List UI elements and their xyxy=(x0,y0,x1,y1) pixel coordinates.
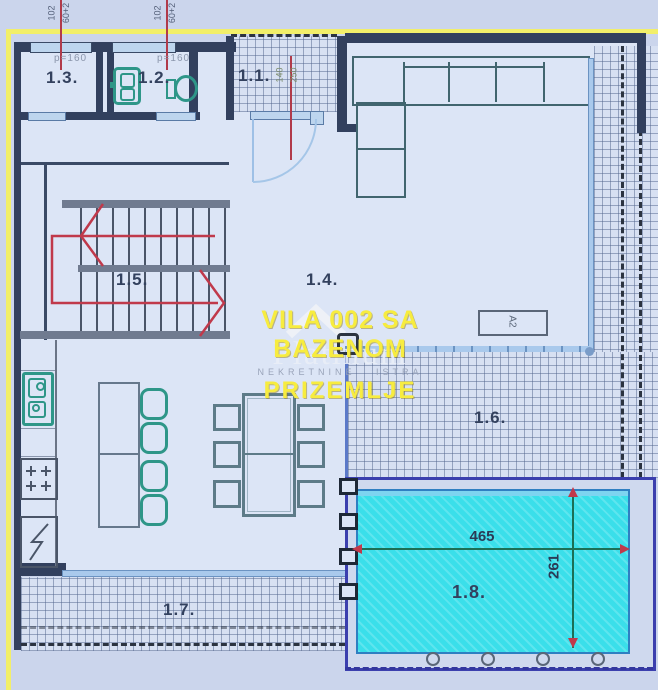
room-label-1-6: 1.6. xyxy=(474,408,506,428)
kitchen-island xyxy=(98,382,140,528)
unit-label-text: A2 xyxy=(507,315,518,327)
washbasin-icon xyxy=(113,67,141,105)
room-label-1-5: 1.5. xyxy=(116,270,148,290)
parapet-label-a: p=160 xyxy=(54,53,87,64)
window-dim-height-a: 60+2 xyxy=(61,3,71,23)
dining-chair xyxy=(213,480,241,508)
sink-tap xyxy=(36,382,45,391)
washbasin-bowl xyxy=(120,73,135,88)
room-label-1-7: 1.7. xyxy=(163,600,195,620)
door-threshold-1-3 xyxy=(28,112,66,121)
window-dim-width-b: 102 xyxy=(153,5,163,20)
entry-dashed-edge xyxy=(231,34,337,37)
watermark-floor: PRIZEMLJE xyxy=(230,377,450,405)
bar-chair xyxy=(140,460,168,492)
room-label-1-8: 1.8. xyxy=(452,582,486,603)
terrace-dashed-line-upper xyxy=(21,626,345,629)
entry-door-swing-icon xyxy=(245,112,330,192)
dining-chair xyxy=(297,480,325,508)
sink-drain xyxy=(32,404,40,412)
pool-width-label: 261 xyxy=(546,547,563,587)
sofa-back-line xyxy=(403,66,545,68)
deck-circle xyxy=(591,652,605,666)
terrace-dashed-line-lower xyxy=(21,643,345,646)
deck-circle xyxy=(536,652,550,666)
deck-circle xyxy=(481,652,495,666)
brand-tagline: NEKRETNINE ISTRA xyxy=(220,367,460,377)
dim-arrow-right xyxy=(620,544,630,554)
pool-length-dim-line xyxy=(358,548,624,550)
boundary-line-left xyxy=(6,29,11,690)
unit-label-box: A2 xyxy=(478,310,548,336)
deck-circle xyxy=(426,652,440,666)
pool-width-dim-line xyxy=(572,491,574,648)
toilet-icon xyxy=(166,74,198,102)
pool-water-edge xyxy=(358,491,628,496)
dining-chair xyxy=(213,404,241,431)
pool-step xyxy=(339,583,358,600)
wall-entry-right xyxy=(337,36,347,132)
island-divider xyxy=(100,453,138,455)
bar-chair xyxy=(140,422,168,454)
sofa-horizontal xyxy=(352,56,590,106)
wall-left-lower xyxy=(14,576,21,650)
dining-chair xyxy=(297,404,325,431)
sofa-divider xyxy=(448,62,450,102)
sofa-divider xyxy=(543,62,545,102)
parapet-label-b: p=160 xyxy=(157,53,190,64)
toilet-bowl xyxy=(174,75,198,102)
appliance-zigzag xyxy=(22,518,56,566)
floor-plan: 102 60+2 102 60+2 140 250 xyxy=(0,0,658,690)
stove-icon xyxy=(20,458,58,500)
wall-hall-edge-h xyxy=(21,162,229,165)
pool-step xyxy=(339,513,358,530)
wall-entry-left xyxy=(226,36,234,120)
bar-chair xyxy=(140,388,168,420)
wall-right-top xyxy=(637,33,646,133)
glass-corner-joint xyxy=(585,347,594,356)
burner xyxy=(41,481,51,491)
sofa-divider xyxy=(358,148,404,150)
washbasin-cabinet xyxy=(120,88,135,101)
pool-water xyxy=(356,489,630,654)
pool-length-label: 465 xyxy=(452,528,512,545)
dining-chair xyxy=(213,441,241,468)
sofa-chaise xyxy=(356,102,406,198)
burner xyxy=(26,481,36,491)
wall-entry-stub xyxy=(337,124,357,132)
pool-deck-dashed-edge xyxy=(345,667,653,670)
wall-living-top xyxy=(345,33,646,43)
bar-chair xyxy=(140,494,168,526)
counter-divider xyxy=(21,428,55,429)
table-divider xyxy=(245,453,293,455)
burner xyxy=(26,466,36,476)
table-inner-edge xyxy=(247,398,291,512)
pool-step xyxy=(339,478,358,495)
kitchen-sink-icon xyxy=(22,372,54,426)
terrace-dashed-boundary-outer xyxy=(621,46,624,478)
window-dim-width-a: 102 xyxy=(47,5,57,20)
wall-bath-divider-a xyxy=(96,50,103,120)
counter-divider xyxy=(21,370,55,371)
burner xyxy=(41,466,51,476)
room-label-1-1: 1.1. xyxy=(238,66,270,86)
sofa-divider xyxy=(495,62,497,102)
counter-divider xyxy=(21,456,55,457)
door-dim-width: 140 xyxy=(275,67,285,82)
room-label-1-3: 1.3. xyxy=(46,68,78,88)
dim-arrow-up xyxy=(568,487,578,497)
window-dim-height-b: 60+2 xyxy=(167,3,177,23)
washbasin-tap xyxy=(110,82,116,88)
dining-chair xyxy=(297,441,325,468)
sofa-divider xyxy=(403,62,405,102)
glass-wall-right xyxy=(588,58,594,352)
appliance-icon xyxy=(20,516,58,568)
door-threshold-1-2 xyxy=(156,112,196,121)
dim-arrow-down xyxy=(568,638,578,648)
room-label-1-4: 1.4. xyxy=(306,270,338,290)
dim-arrow-left xyxy=(352,544,362,554)
watermark-title: VILA 002 SA BAZENOM xyxy=(195,306,485,364)
dining-table xyxy=(242,393,296,517)
terrace-dashed-boundary-inner xyxy=(639,130,642,478)
door-dim-height: 250 xyxy=(289,67,299,82)
room-label-1-2: 1.2. xyxy=(138,68,170,88)
sliding-glass-door-terrace xyxy=(62,570,347,577)
